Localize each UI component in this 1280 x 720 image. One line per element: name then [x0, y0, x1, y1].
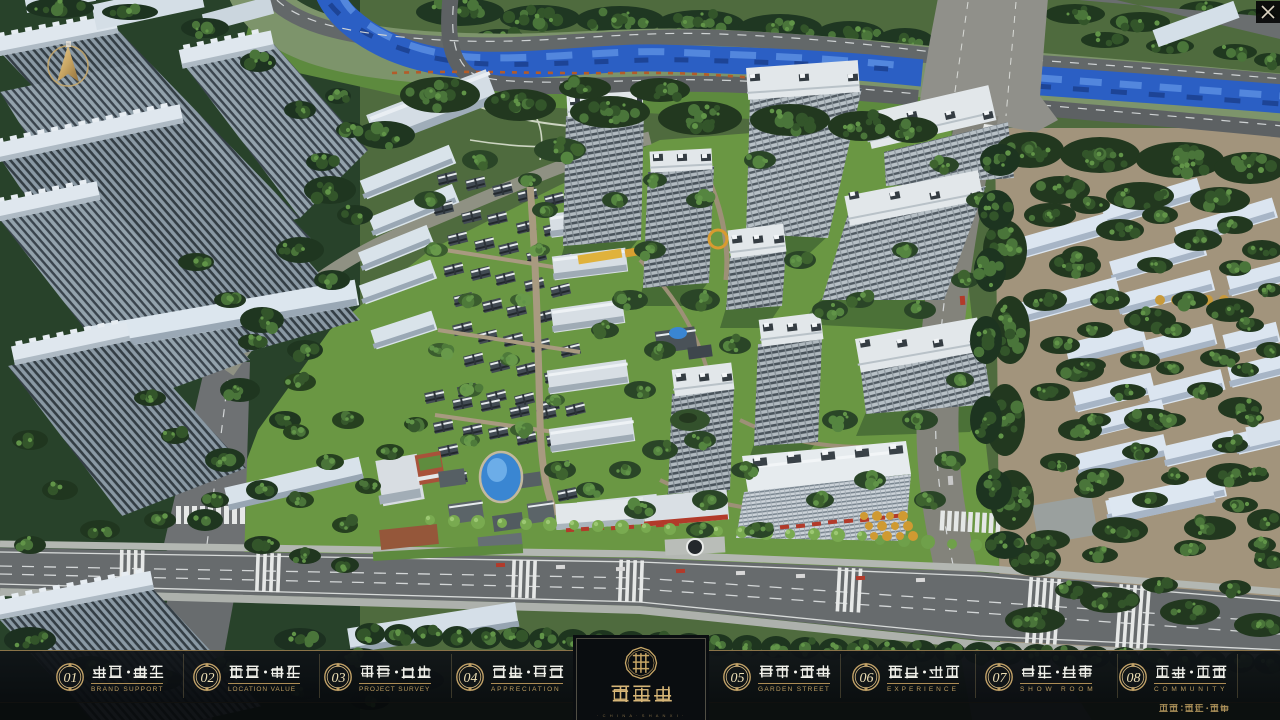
- svg-text:01: 01: [64, 671, 78, 686]
- svg-text:08: 08: [1127, 671, 1141, 686]
- svg-text:05: 05: [731, 671, 745, 686]
- svg-text:02: 02: [201, 671, 215, 686]
- svg-text:04: 04: [464, 671, 478, 686]
- svg-text:06: 06: [860, 671, 874, 686]
- svg-text:03: 03: [332, 671, 346, 686]
- svg-text:07: 07: [993, 671, 1008, 686]
